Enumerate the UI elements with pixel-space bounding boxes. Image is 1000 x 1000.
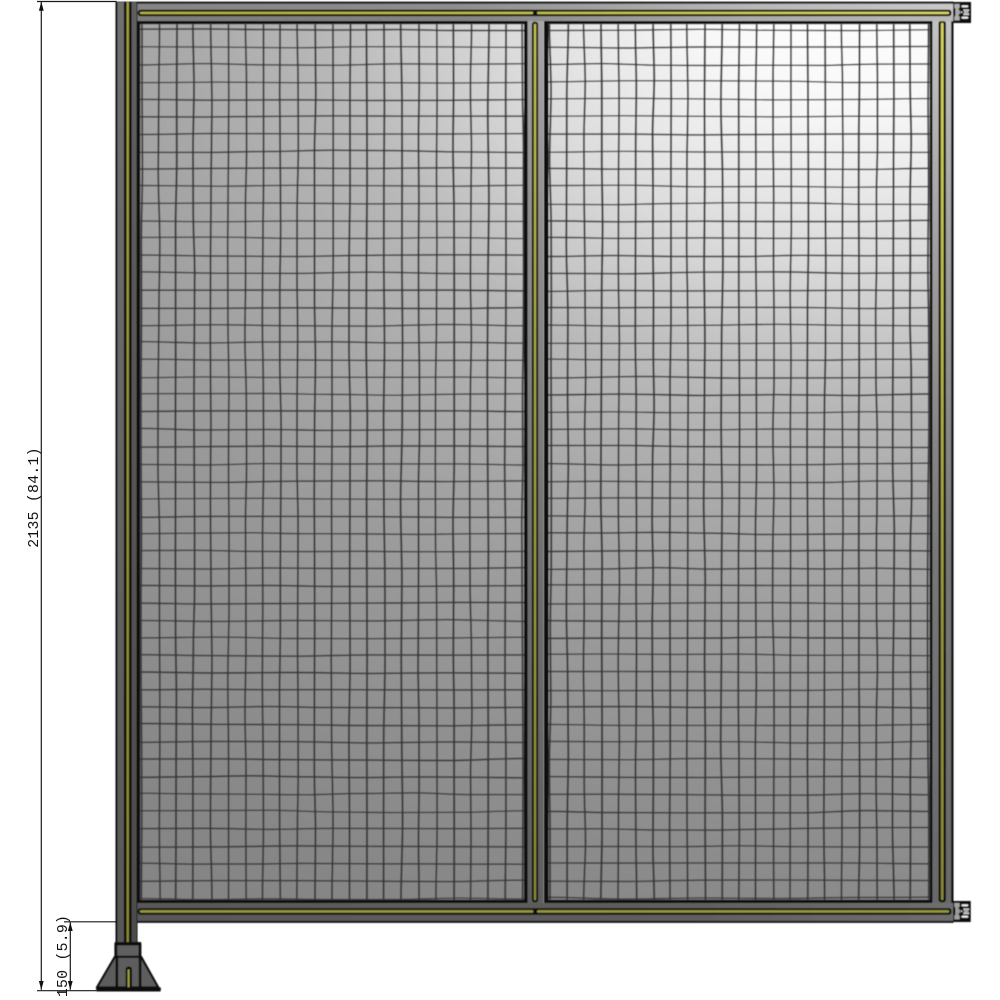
svg-text:150 (5.9): 150 (5.9) — [56, 915, 72, 997]
svg-text:2135 (84.1): 2135 (84.1) — [27, 447, 43, 547]
